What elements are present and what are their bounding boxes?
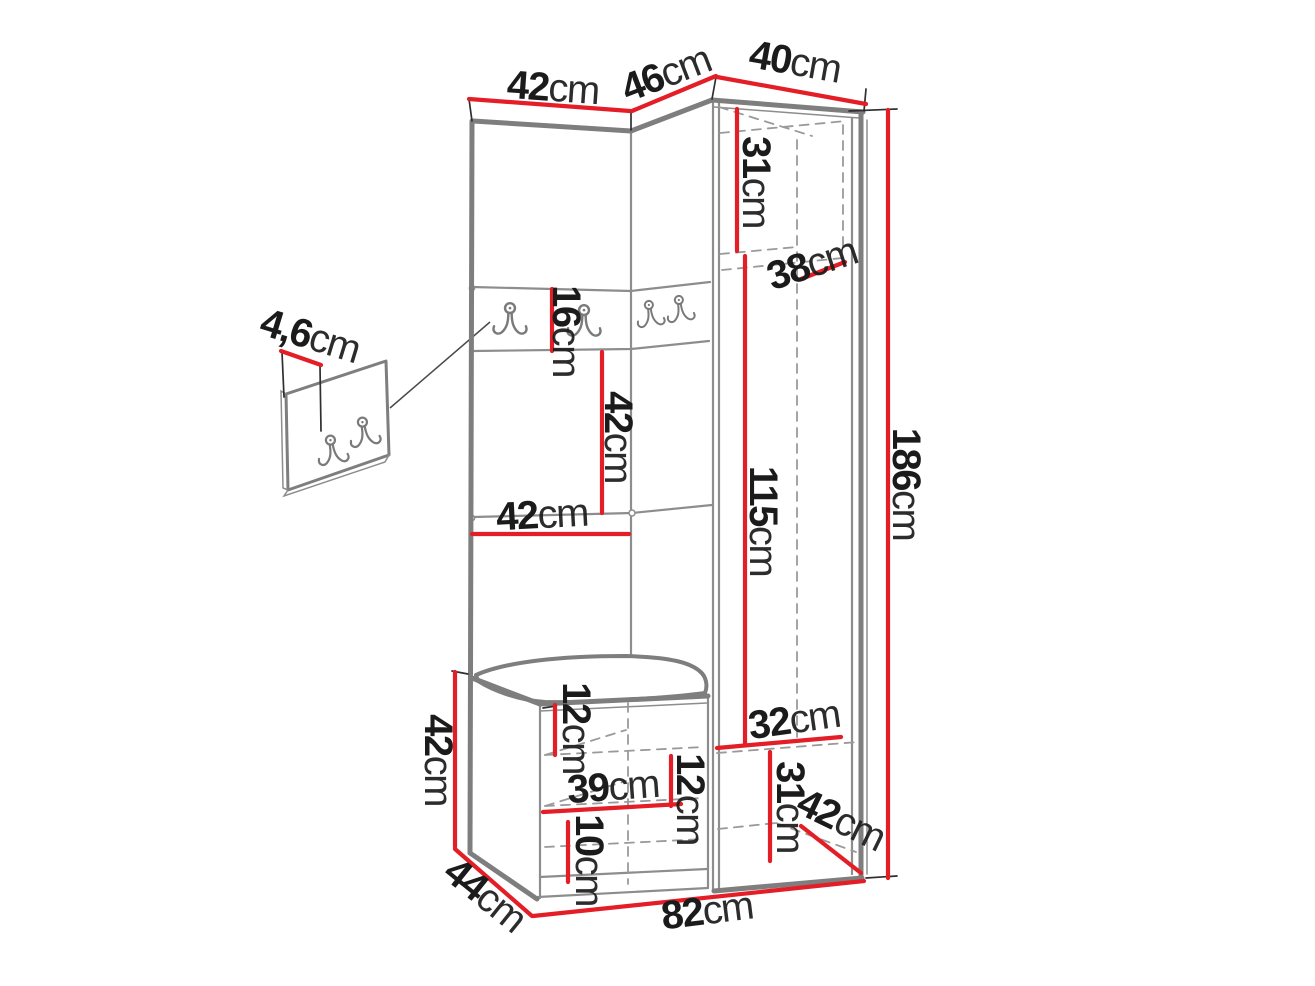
- dim-label-shelf-width: 42cm: [495, 491, 589, 540]
- hook-strip-hooks: [494, 294, 696, 336]
- dim-label-bench-under-seat-gap: 12cm: [554, 682, 598, 774]
- detail-leader-line: [390, 322, 490, 408]
- hook-panel-front-face: [286, 361, 389, 490]
- tick: [282, 352, 284, 397]
- hook-strip-top-line: [472, 282, 710, 291]
- dim-label-bench-bottom-shelf-height: 10cm: [567, 814, 611, 906]
- dim-label-wardrobe-inner-height: 115cm: [741, 466, 785, 576]
- top-edge-left-panel: [473, 121, 631, 131]
- coat-hook-icon: [665, 294, 695, 322]
- coat-hook-icon: [635, 299, 665, 327]
- top-edge-wardrobe: [712, 100, 863, 112]
- hallway-furniture-dimension-diagram: 42cm 46cm 40cm 31cm 38cm 186cm 4,6cm 16c…: [0, 0, 1315, 986]
- tick: [866, 876, 897, 878]
- dim-label-top-width-wardrobe: 40cm: [746, 32, 844, 91]
- tick: [469, 99, 472, 121]
- dim-label-top-width-corner: 46cm: [615, 37, 716, 111]
- dim-label-bench-shelf-spacing: 12cm: [668, 753, 712, 845]
- dimension-labels: 42cm 46cm 40cm 31cm 38cm 186cm 4,6cm 16c…: [255, 32, 928, 941]
- dim-label-total-width: 82cm: [659, 884, 756, 939]
- pivot-dot: [629, 510, 635, 516]
- hook-strip-bottom-line: [473, 341, 709, 351]
- dim-label-wardrobe-top-inner-height: 31cm: [734, 136, 778, 228]
- tick: [712, 77, 716, 99]
- diagram-stage: 42cm 46cm 40cm 31cm 38cm 186cm 4,6cm 16c…: [0, 0, 1315, 986]
- left-outer-edge: [470, 121, 472, 853]
- bench-plinth-front-line: [540, 869, 707, 877]
- dim-label-hook-strip-height: 16cm: [544, 285, 588, 377]
- wardrobe-shoe-shelf: [718, 823, 776, 829]
- tick: [320, 366, 321, 431]
- coat-hook-icon: [494, 303, 527, 333]
- dim-label-open-section-height: 42cm: [596, 391, 640, 483]
- dim-label-bench-height: 42cm: [416, 714, 460, 806]
- dim-label-bench-inner-width: 39cm: [566, 762, 661, 812]
- dim-label-top-width-left: 42cm: [506, 63, 601, 113]
- dim-label-wardrobe-depth-top: 38cm: [762, 229, 863, 299]
- tick: [864, 89, 866, 111]
- dim-label-total-height: 186cm: [884, 428, 928, 541]
